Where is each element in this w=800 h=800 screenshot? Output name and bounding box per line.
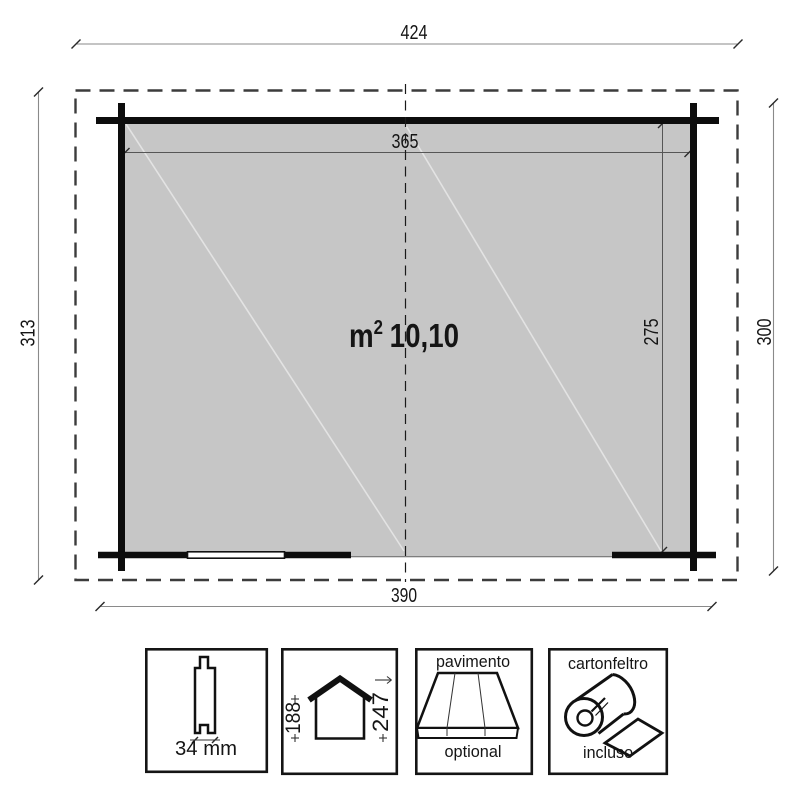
dim-text-inner-depth: 275 [640,319,663,346]
eave-height-label: 188 [282,702,305,734]
door-opening [351,551,612,557]
dim-left-depth: 313 [17,88,44,585]
window [188,552,285,558]
floor-plan-drawing: 365 275 m210,10 424 390 [0,0,800,800]
felt-label-bottom: incluso [583,743,633,762]
plank-profile-icon [195,657,215,733]
felt-label-top: cartonfeltro [568,654,648,673]
area-unit: m [349,318,374,355]
house-walls-icon [316,698,364,739]
dim-text-bottom-width: 390 [391,584,417,607]
svg-text:m210,10: m210,10 [349,316,459,355]
floor-label-bottom: optional [445,742,502,761]
legend-box-felt: cartonfeltro incluso [549,649,667,774]
floor-label-top: pavimento [436,652,510,671]
plank-thickness-label: 34 mm [175,738,237,760]
legend-box-heights: 188 247 [282,649,397,774]
legend-box-plank: 34 mm [146,649,266,772]
area-sup: 2 [374,316,383,339]
area-value: 10,10 [390,318,459,355]
dim-text-left-depth: 313 [17,320,40,347]
floor-plan-page: 365 275 m210,10 424 390 [0,0,800,800]
dim-text-roof-width: 424 [401,21,428,44]
dim-right-depth: 300 [753,99,778,576]
dim-text-right-depth: 300 [753,319,776,346]
area-label: m210,10 [349,316,459,355]
ridge-height-label: 247 [368,692,393,732]
legend-box-floor: pavimento optional [416,649,532,774]
dim-bottom-width: 390 [96,584,717,611]
dim-roof-width: 424 [72,21,743,49]
